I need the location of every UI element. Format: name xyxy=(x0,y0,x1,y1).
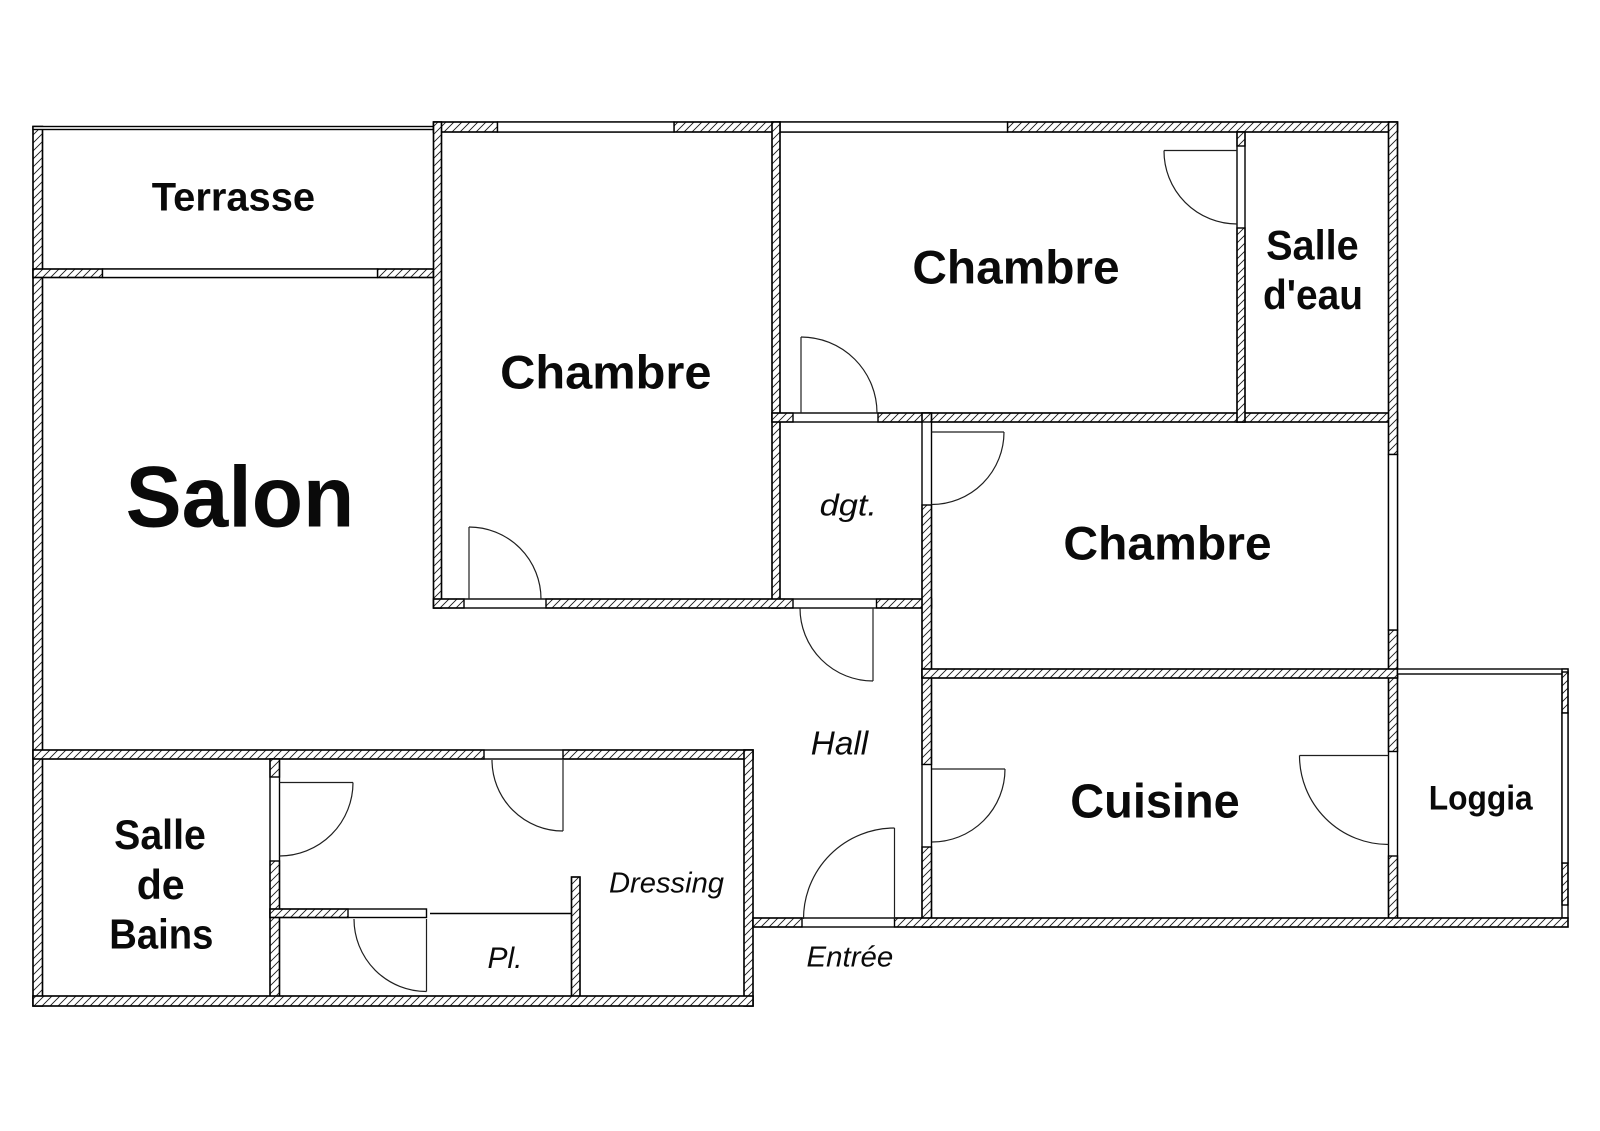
svg-text:d'eau: d'eau xyxy=(1263,271,1363,318)
svg-text:de: de xyxy=(137,861,185,908)
svg-text:Loggia: Loggia xyxy=(1429,779,1534,817)
svg-text:Dressing: Dressing xyxy=(609,868,724,900)
svg-text:Entrée: Entrée xyxy=(807,942,894,974)
svg-text:Chambre: Chambre xyxy=(500,347,711,400)
svg-text:Hall: Hall xyxy=(811,725,870,762)
svg-text:Pl.: Pl. xyxy=(487,942,522,975)
svg-text:Chambre: Chambre xyxy=(912,241,1119,294)
svg-text:Salon: Salon xyxy=(126,449,355,545)
svg-text:Bains: Bains xyxy=(109,910,213,957)
svg-text:Terrasse: Terrasse xyxy=(152,176,315,220)
svg-text:dgt.: dgt. xyxy=(820,488,877,523)
svg-text:Cuisine: Cuisine xyxy=(1070,775,1239,828)
svg-text:Salle: Salle xyxy=(1266,222,1359,269)
svg-text:Chambre: Chambre xyxy=(1063,517,1271,570)
svg-text:Salle: Salle xyxy=(114,811,206,858)
